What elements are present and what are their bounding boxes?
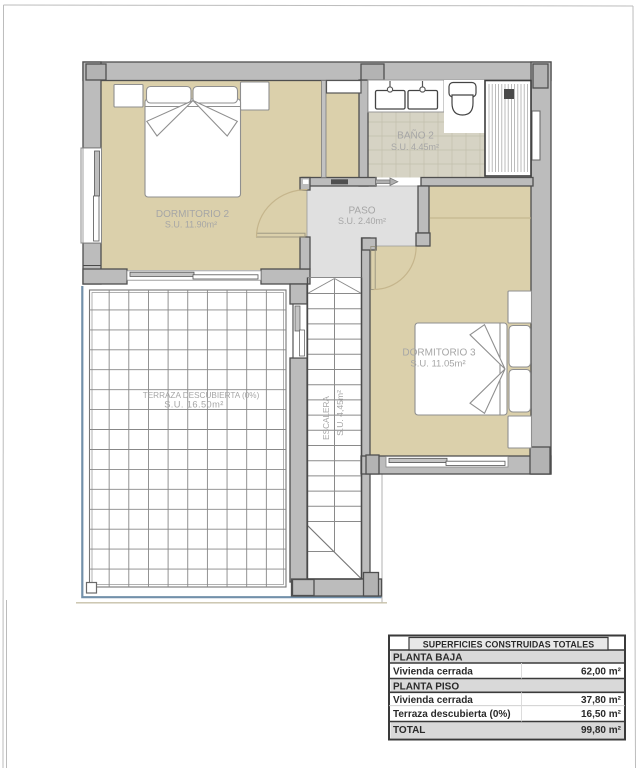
svg-text:S.U. 16.50m²: S.U. 16.50m²	[164, 400, 224, 410]
svg-text:99,80 m²: 99,80 m²	[581, 725, 622, 736]
svg-text:SUPERFICIES CONSTRUIDAS TOTALE: SUPERFICIES CONSTRUIDAS TOTALES	[423, 640, 594, 650]
svg-text:Vivienda cerrada: Vivienda cerrada	[393, 667, 473, 678]
svg-text:TOTAL: TOTAL	[393, 725, 425, 736]
svg-text:Vivienda cerrada: Vivienda cerrada	[393, 695, 473, 706]
svg-text:DORMITORIO 3: DORMITORIO 3	[402, 348, 476, 359]
svg-text:BAÑO 2: BAÑO 2	[397, 129, 434, 142]
svg-text:S.U. 2.40m²: S.U. 2.40m²	[338, 216, 386, 226]
svg-text:PLANTA BAJA: PLANTA BAJA	[393, 653, 462, 664]
svg-text:S.U. 4,45m²: S.U. 4,45m²	[335, 390, 345, 436]
svg-text:Terraza descubierta (0%): Terraza descubierta (0%)	[393, 709, 511, 720]
svg-text:37,80 m²: 37,80 m²	[581, 695, 622, 706]
svg-text:62,00 m²: 62,00 m²	[581, 667, 622, 678]
svg-text:DORMITORIO 2: DORMITORIO 2	[156, 209, 230, 220]
svg-text:ESCALERA: ESCALERA	[322, 396, 331, 440]
svg-text:PLANTA PISO: PLANTA PISO	[393, 682, 459, 693]
svg-text:S.U. 11.05m²: S.U. 11.05m²	[410, 359, 465, 370]
svg-text:16,50 m²: 16,50 m²	[581, 709, 622, 720]
svg-text:S.U. 11.90m²: S.U. 11.90m²	[165, 220, 217, 230]
svg-text:S.U. 4.45m²: S.U. 4.45m²	[391, 142, 439, 152]
